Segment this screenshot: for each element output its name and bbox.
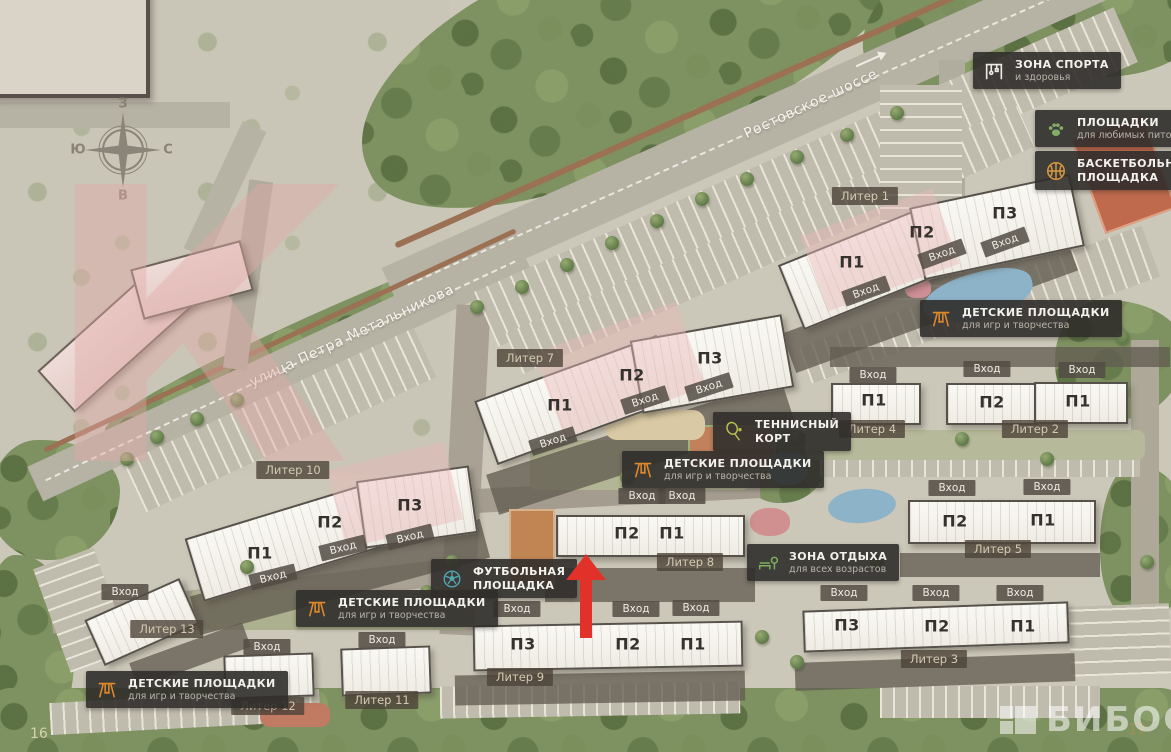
entrance-badge: Вход — [672, 600, 719, 616]
section-label: П2 — [924, 617, 950, 636]
entrance-badge: Вход — [963, 361, 1010, 377]
amenity-title: ЗОНА СПОРТА — [1015, 58, 1109, 71]
building-label-liter-9: Литер 9 — [487, 668, 553, 686]
amenity-title: ДЕТСКИЕ ПЛОЩАДКИ — [128, 677, 276, 690]
section-label: П1 — [247, 544, 273, 563]
site-plan-map: Ростовское шоссе улица Петра Метальников… — [0, 0, 1171, 752]
section-label: П3 — [992, 204, 1018, 223]
amenity-title: ПЛОЩАДКИ — [1077, 116, 1171, 129]
amenity-title: БАСКЕТБОЛЬНАЯ — [1077, 157, 1171, 170]
compass-east: В — [118, 189, 128, 204]
amenity-badge-sport-zone: ЗОНА СПОРТАи здоровья — [973, 52, 1121, 89]
amenity-badge-kids-center: ДЕТСКИЕ ПЛОЩАДКИдля игр и творчества — [622, 451, 824, 488]
section-label: П1 — [659, 524, 685, 543]
tree — [650, 214, 664, 228]
amenity-subtitle: для любимых питомцев — [1077, 130, 1171, 141]
building-label-liter-5: Литер 5 — [965, 540, 1031, 558]
pets-icon — [1044, 117, 1068, 141]
tree — [890, 106, 904, 120]
tree — [790, 655, 804, 669]
amenity-title: ТЕННИСНЫЙ — [755, 418, 839, 431]
entrance-badge: Вход — [996, 585, 1043, 601]
location-arrow-icon — [566, 554, 606, 580]
page-number-left: 16 — [30, 726, 48, 742]
building-nw-corner — [0, 0, 150, 98]
playground-icon — [305, 597, 329, 621]
section-label: П1 — [680, 635, 706, 654]
amenity-badge-kids-northeast: ДЕТСКИЕ ПЛОЩАДКИдля игр и творчества — [920, 300, 1122, 337]
tree — [790, 150, 804, 164]
building-label-liter-8: Литер 8 — [657, 553, 723, 571]
section-label: П3 — [834, 616, 860, 635]
entrance-badge: Вход — [612, 601, 659, 617]
amenity-badge-rest-zone: ЗОНА ОТДЫХАдля всех возрастов — [747, 544, 899, 581]
tree — [230, 393, 244, 407]
playground-icon — [631, 458, 655, 482]
amenity-subtitle: для игр и творчества — [962, 320, 1110, 331]
building-liter-8 — [556, 515, 745, 557]
section-label: П2 — [614, 524, 640, 543]
building-liter-5 — [908, 500, 1096, 544]
tree — [150, 430, 164, 444]
tree — [515, 280, 529, 294]
section-label: П2 — [317, 513, 343, 532]
building-label-liter-2: Литер 2 — [1002, 420, 1068, 438]
tree — [470, 300, 484, 314]
tree — [1140, 555, 1154, 569]
pool-rest-zone — [827, 486, 898, 526]
compass-south: Ю — [70, 143, 85, 158]
section-label: П2 — [619, 366, 645, 385]
parking-east-liter3 — [1069, 603, 1171, 676]
amenity-subtitle: ПЛОЩАДКА — [1077, 171, 1171, 184]
section-label: П1 — [861, 391, 887, 410]
tree — [695, 192, 709, 206]
entrance-badge: Вход — [101, 584, 148, 600]
section-label: П2 — [942, 512, 968, 531]
amenity-badge-kids-southwest: ДЕТСКИЕ ПЛОЩАДКИдля игр и творчества — [86, 671, 288, 708]
section-label: П2 — [979, 393, 1005, 412]
compass-north: С — [163, 143, 173, 158]
section-label: П3 — [397, 496, 423, 515]
amenity-badge-tennis: ТЕННИСНЫЙКОРТ — [713, 412, 851, 451]
tree — [190, 412, 204, 426]
bench-icon — [756, 551, 780, 575]
building-label-liter-3: Литер 3 — [901, 650, 967, 668]
building-label-liter-11: Литер 11 — [345, 691, 418, 709]
biboss-logo-text: БИБОСС — [1046, 700, 1171, 740]
amenity-subtitle: КОРТ — [755, 432, 839, 445]
football-icon — [440, 567, 464, 591]
building-liter-11 — [340, 645, 432, 696]
entrance-badge: Вход — [912, 585, 959, 601]
amenity-title: ДЕТСКИЕ ПЛОЩАДКИ — [664, 457, 812, 470]
entrance-badge: Вход — [928, 480, 975, 496]
biboss-watermark: БИБОСС — [998, 700, 1171, 740]
amenity-subtitle: для игр и творчества — [664, 471, 812, 482]
entrance-badge: Вход — [358, 632, 405, 648]
amenity-title: ФУТБОЛЬНАЯ — [473, 565, 565, 578]
amenity-title: ДЕТСКИЕ ПЛОЩАДКИ — [338, 596, 486, 609]
amenity-subtitle: для игр и творчества — [338, 610, 486, 621]
tree — [560, 258, 574, 272]
entrance-badge: Вход — [493, 601, 540, 617]
playground-pink — [750, 508, 790, 536]
amenity-title: ДЕТСКИЕ ПЛОЩАДКИ — [962, 306, 1110, 319]
tree — [120, 452, 134, 466]
entrance-badge: Вход — [849, 367, 896, 383]
entrance-badge: Вход — [1058, 362, 1105, 378]
basketball-icon — [1044, 159, 1068, 183]
section-label: П1 — [1010, 617, 1036, 636]
entrance-badge: Вход — [820, 585, 867, 601]
location-arrow-shaft — [580, 578, 592, 638]
playground-icon — [95, 678, 119, 702]
building-label-liter-1: Литер 1 — [832, 187, 898, 205]
section-label: П3 — [697, 349, 723, 368]
section-label: П1 — [1030, 511, 1056, 530]
section-label: П1 — [547, 396, 573, 415]
amenity-badge-kids-midleft: ДЕТСКИЕ ПЛОЩАДКИдля игр и творчества — [296, 590, 498, 627]
compass-west: З — [118, 97, 127, 112]
compass-rose: З С В Ю — [73, 100, 173, 200]
tree — [755, 630, 769, 644]
amenity-badge-pets: ПЛОЩАДКИдля любимых питомцев — [1035, 110, 1171, 147]
section-label: П1 — [839, 253, 865, 272]
entrance-badge: Вход — [658, 488, 705, 504]
tree — [840, 128, 854, 142]
building-label-liter-13: Литер 13 — [130, 620, 203, 638]
entrance-badge: Вход — [1023, 479, 1070, 495]
tree — [605, 236, 619, 250]
tree — [740, 172, 754, 186]
playground-icon — [929, 307, 953, 331]
compass-star-icon — [73, 100, 173, 200]
amenity-subtitle: и здоровья — [1015, 72, 1109, 83]
tennis-icon — [722, 420, 746, 444]
section-label: П2 — [615, 635, 641, 654]
biboss-logo-icon — [998, 700, 1038, 740]
section-label: П2 — [909, 223, 935, 242]
building-label-liter-7: Литер 7 — [497, 349, 563, 367]
amenity-subtitle: для всех возрастов — [789, 564, 887, 575]
tree — [1040, 452, 1054, 466]
gym-icon — [982, 59, 1006, 83]
building-label-liter-10: Литер 10 — [256, 461, 329, 479]
tree — [955, 432, 969, 446]
section-label: П1 — [1065, 392, 1091, 411]
section-label: П3 — [510, 635, 536, 654]
amenity-badge-basketball: БАСКЕТБОЛЬНАЯПЛОЩАДКА — [1035, 151, 1171, 190]
amenity-subtitle: для игр и творчества — [128, 691, 276, 702]
entrance-badge: Вход — [243, 639, 290, 655]
amenity-title: ЗОНА ОТДЫХА — [789, 550, 887, 563]
